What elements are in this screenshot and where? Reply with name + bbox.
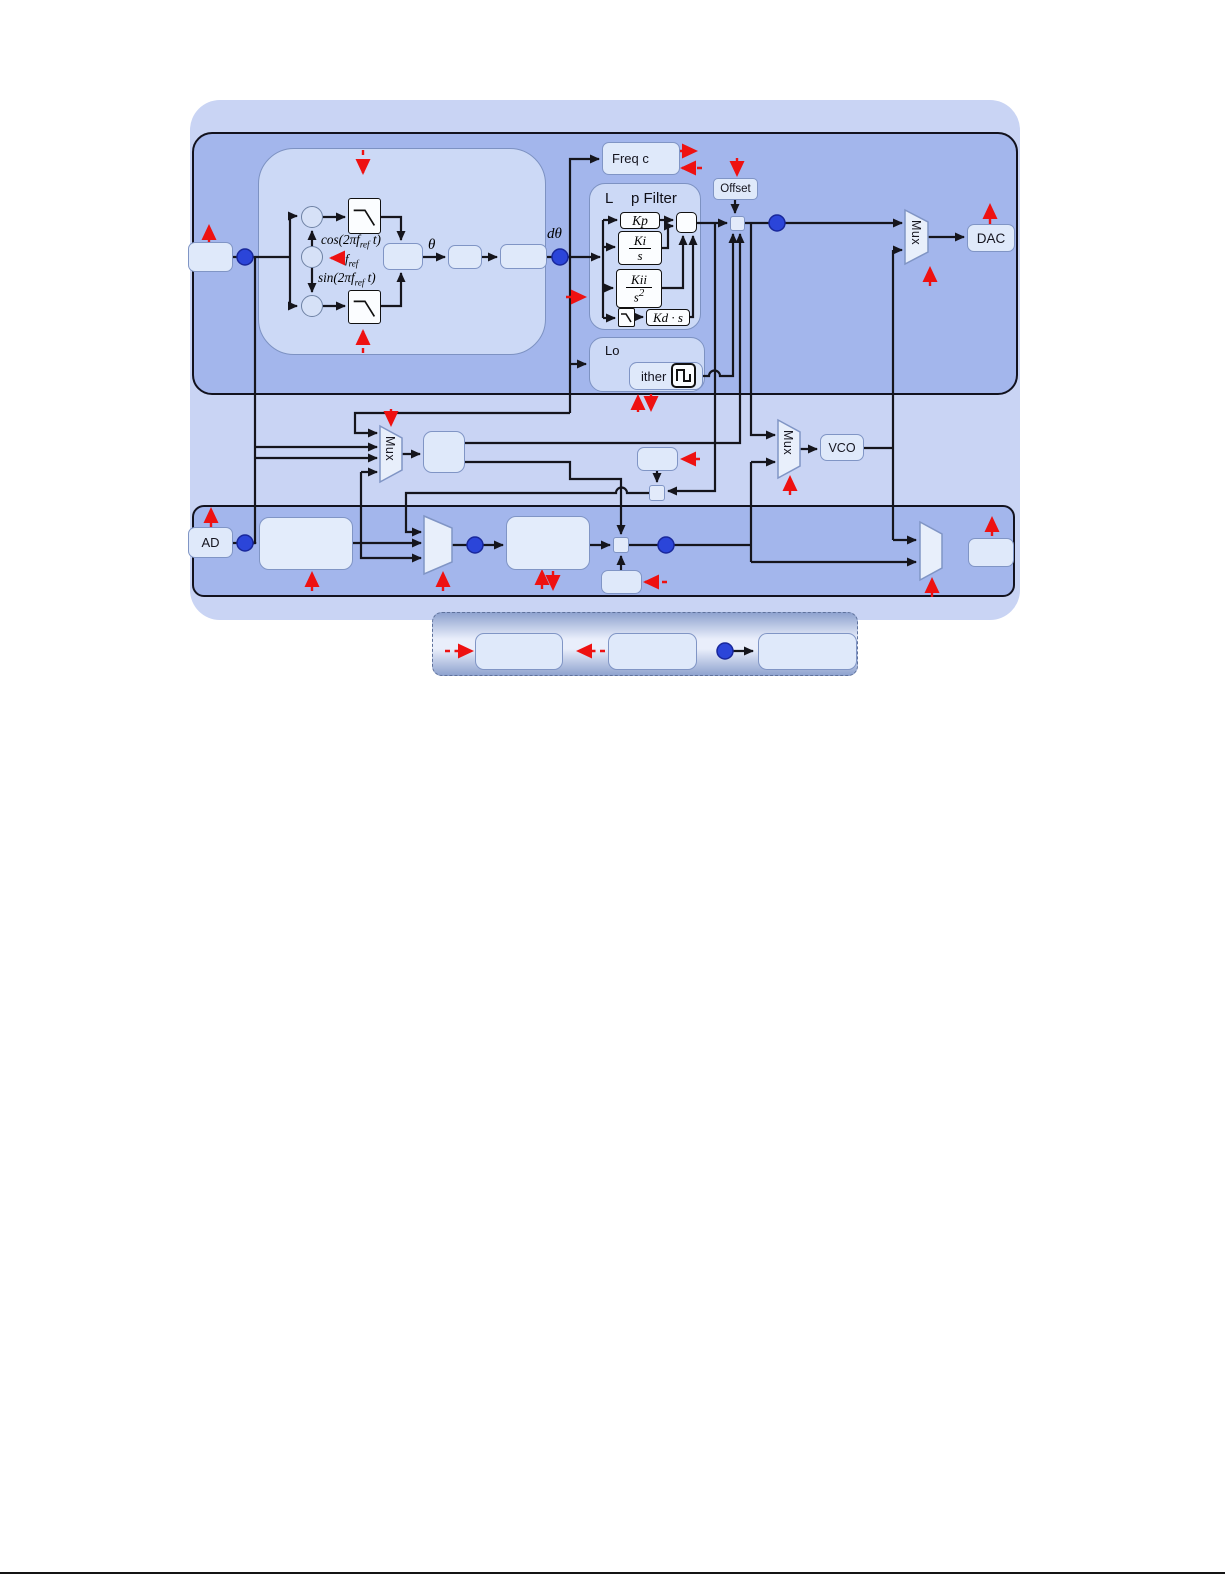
phase-stage-box — [448, 245, 482, 269]
legend-item-box-readout — [608, 633, 697, 670]
legend-item-box-signal — [758, 633, 857, 670]
gain-setting-box — [637, 447, 678, 471]
ki-integrator-box: Ki s — [618, 231, 662, 265]
theta-label: θ — [428, 237, 435, 254]
kd-label: Kd · s — [653, 310, 683, 326]
kii-double-integrator-box: Kii s2 — [616, 269, 662, 308]
cos-reference-label: cos(2πfref t) — [321, 232, 381, 250]
middle-stage-box — [423, 431, 465, 473]
f-sub: ref — [360, 240, 370, 250]
middle-mux-label: Mux — [383, 436, 397, 461]
dac-label: DAC — [977, 231, 1006, 246]
loop-filter-title: p Filter — [631, 190, 677, 207]
bottom-right-mux — [916, 518, 946, 584]
bottom-mux — [420, 512, 456, 578]
offset-box: Offset — [713, 178, 758, 200]
loop-filter-sum-node — [676, 212, 697, 233]
mux-shape — [920, 522, 942, 580]
square-wave-icon-box — [671, 363, 696, 388]
f-sub: ref — [349, 259, 359, 269]
offset-sum-node — [730, 216, 745, 231]
input-filter-box — [259, 517, 353, 570]
vco-mux-label: Mux — [781, 430, 795, 455]
kp-gain-box: Kp — [620, 212, 660, 229]
sin-pre: sin(2π — [318, 270, 351, 285]
sin-post: t) — [364, 270, 375, 285]
offset-label: Offset — [720, 183, 750, 195]
dither-label: ither — [641, 369, 666, 384]
input-port-box — [188, 242, 233, 272]
output-port-box — [968, 538, 1014, 567]
frequency-counter-box: Freq c — [602, 142, 680, 175]
adc-box: AD — [188, 527, 233, 558]
lock-panel-title: Lo — [605, 343, 619, 358]
phase-detect-box — [383, 243, 423, 270]
multiplier-node-top — [301, 206, 323, 228]
derivative-filter-box — [618, 308, 635, 327]
bottom-sum-node — [613, 537, 629, 553]
legend-item-box-setting — [475, 633, 563, 670]
vco-label: VCO — [828, 441, 855, 455]
lowpass-filter-icon — [349, 198, 380, 234]
oscillator-node — [301, 246, 323, 268]
ki-denominator: s — [637, 249, 642, 263]
frequency-counter-label: Freq c — [612, 151, 649, 166]
square-wave-icon — [674, 366, 693, 385]
fref-label: fref — [345, 251, 358, 269]
output-mux-label: Mux — [909, 220, 923, 245]
phase-output-box — [500, 244, 547, 269]
middle-sum-node — [649, 485, 665, 501]
dtheta-label: dθ — [547, 226, 562, 243]
bottom-offset-box — [601, 570, 642, 594]
kii-den-exponent: 2 — [639, 287, 644, 299]
cos-pre: cos(2π — [321, 232, 356, 247]
f-sub: ref — [355, 278, 365, 288]
kii-numerator: Kii — [626, 273, 652, 288]
vco-box: VCO — [820, 434, 864, 461]
kii-denominator: s2 — [634, 288, 644, 304]
mux-shape — [424, 516, 452, 574]
block-layer: cos(2πfref t) sin(2πfref t) fref θ dθ Fr… — [0, 0, 1225, 1585]
ki-numerator: Ki — [629, 234, 651, 249]
lowpass-filter-icon — [349, 290, 380, 324]
kd-derivative-box: Kd · s — [646, 309, 690, 326]
sin-reference-label: sin(2πfref t) — [318, 270, 376, 288]
processing-box — [506, 516, 590, 570]
loop-filter-title-l: L — [605, 190, 613, 207]
cos-post: t) — [370, 232, 381, 247]
kp-label: Kp — [632, 213, 648, 229]
dac-box: DAC — [967, 224, 1015, 252]
lowpass-filter-box-bottom — [348, 290, 381, 324]
lowpass-filter-box-top — [348, 198, 381, 234]
adc-label: AD — [201, 535, 219, 550]
diagram-page: cos(2πfref t) sin(2πfref t) fref θ dθ Fr… — [0, 0, 1225, 1585]
lowpass-filter-icon — [619, 309, 634, 326]
multiplier-node-bottom — [301, 295, 323, 317]
